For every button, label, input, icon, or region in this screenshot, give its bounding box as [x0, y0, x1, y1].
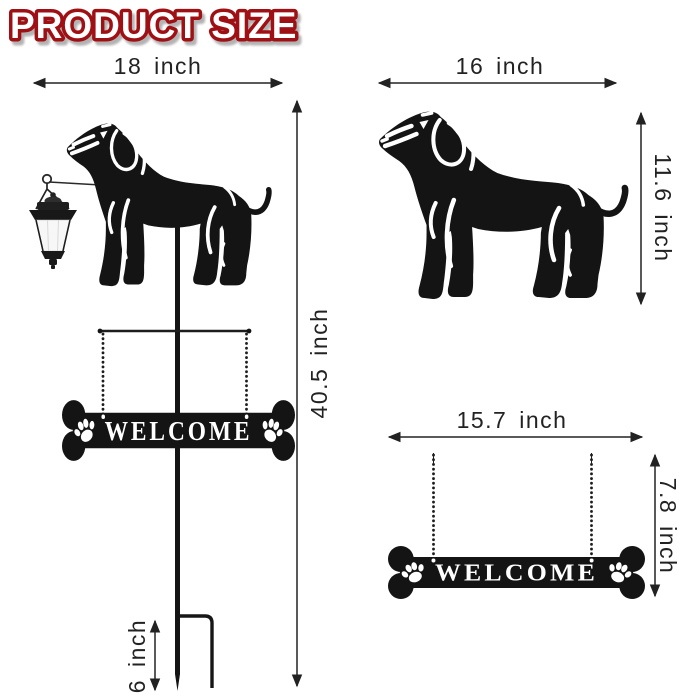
lantern-hook [43, 175, 51, 183]
product-size-infographic: WELCOME [0, 0, 679, 698]
full-product-group: 18 inch 40.5 inch 6 inch [29, 53, 332, 693]
page-title: PRODUCT SIZE [10, 5, 297, 46]
lantern-base [41, 251, 65, 259]
lantern-cap [29, 210, 77, 220]
garden-stake-icon [175, 224, 180, 691]
left-dog-silhouette [67, 123, 269, 286]
dog-width-label: 16 inch [456, 53, 545, 79]
stake-prong [179, 616, 212, 688]
lantern-glass [36, 220, 70, 251]
right-welcome-sign [388, 546, 645, 599]
right-dog-silhouette [379, 112, 625, 299]
welcome-sign-group: 15.7 inch 7.8 inch [388, 407, 679, 599]
stake-depth-label: 6 inch [124, 619, 150, 693]
dog-height-label: 11.6 inch [650, 153, 676, 262]
dog-cutout-group: 16 inch 11.6 inch [379, 53, 676, 304]
sign-height-label: 7.8 inch [655, 478, 679, 575]
sign-width-label: 15.7 inch [457, 407, 568, 433]
full-product-width-label: 18 inch [114, 53, 203, 79]
full-product-height-label: 40.5 inch [306, 308, 332, 419]
diagram-canvas: WELCOME [0, 0, 679, 698]
